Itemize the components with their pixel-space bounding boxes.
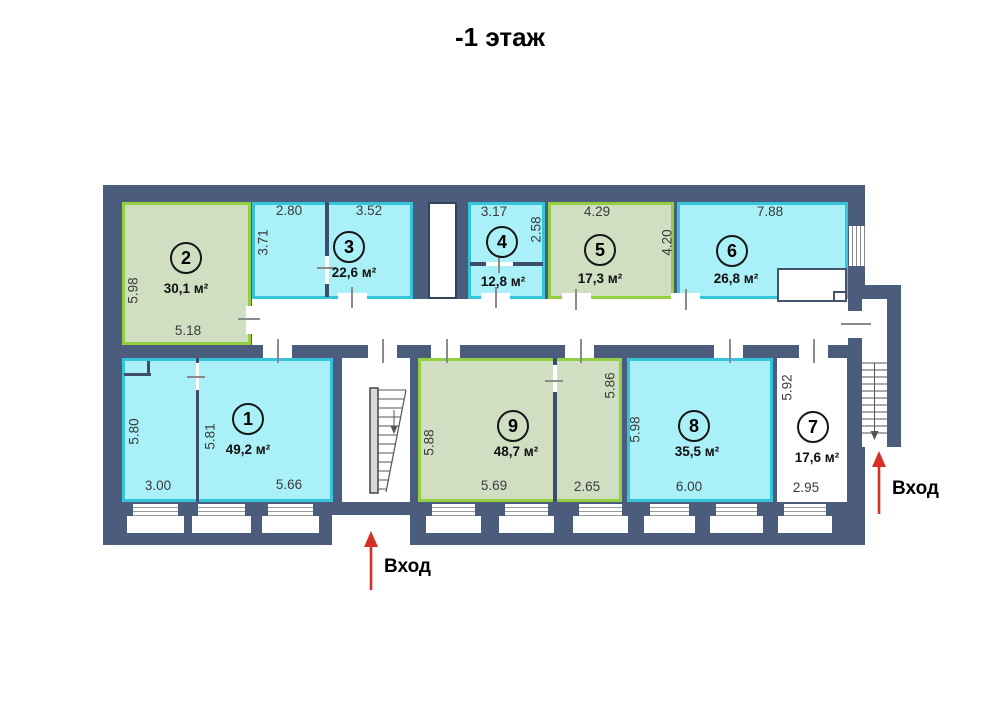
door-tick xyxy=(495,287,497,308)
dimension-label: 7.88 xyxy=(748,204,792,219)
wall-notch xyxy=(147,361,150,376)
room-6-area: 26,8 м² xyxy=(686,271,786,287)
window xyxy=(784,504,826,516)
window-well xyxy=(262,516,319,533)
door-tick xyxy=(238,318,260,320)
window-well xyxy=(778,516,832,533)
corridor xyxy=(252,299,848,345)
dimension-label: 5.98 xyxy=(628,408,643,452)
room-2-area: 30,1 м² xyxy=(136,281,236,297)
stairs-icon xyxy=(862,299,887,447)
room-8-number: 8 xyxy=(678,410,710,442)
door-tick xyxy=(351,287,353,308)
dimension-label: 3.17 xyxy=(472,204,516,219)
dimension-label: 2.80 xyxy=(267,203,311,218)
room-7-number: 7 xyxy=(797,411,829,443)
door-tick xyxy=(446,339,448,363)
door-tick xyxy=(685,289,687,310)
door-tick xyxy=(580,339,582,363)
window-well xyxy=(192,516,251,533)
window-well xyxy=(426,516,481,533)
niche-step xyxy=(833,291,835,302)
room-5-area: 17,3 м² xyxy=(550,271,650,287)
room-7-area: 17,6 м² xyxy=(767,450,867,466)
room-4-area: 12,8 м² xyxy=(453,274,553,290)
room-1-number: 1 xyxy=(232,403,264,435)
dimension-label: 4.29 xyxy=(575,204,619,219)
door-opening xyxy=(553,365,557,392)
dimension-label: 5.80 xyxy=(127,410,142,454)
room-3-area: 22,6 м² xyxy=(304,265,404,281)
entrance-label-bottom: Вход xyxy=(384,556,431,578)
room-3-number: 3 xyxy=(333,231,365,263)
dimension-label: 2.58 xyxy=(529,208,544,252)
stairs-icon xyxy=(342,358,410,502)
dimension-label: 5.69 xyxy=(472,478,516,493)
room-8-area: 35,5 м² xyxy=(647,444,747,460)
dimension-label: 2.95 xyxy=(784,480,828,495)
door-tick xyxy=(545,380,563,382)
page-title: -1 этаж xyxy=(0,22,1000,53)
dimension-label: 5.86 xyxy=(603,364,618,408)
window xyxy=(650,504,689,516)
room-1-area: 49,2 м² xyxy=(198,442,298,458)
window xyxy=(505,504,548,516)
window-well xyxy=(644,516,695,533)
dimension-label: 3.71 xyxy=(256,221,271,265)
window xyxy=(432,504,475,516)
window xyxy=(133,504,178,516)
door-tick xyxy=(729,339,731,363)
window xyxy=(716,504,757,516)
dimension-label: 5.88 xyxy=(422,421,437,465)
window xyxy=(849,226,865,266)
window xyxy=(268,504,313,516)
window xyxy=(198,504,245,516)
window xyxy=(579,504,622,516)
window-well xyxy=(710,516,763,533)
door-tick xyxy=(575,289,577,310)
floor-plan: -1 этаж xyxy=(0,0,1000,713)
dimension-label: 6.00 xyxy=(667,479,711,494)
dimension-label: 5.92 xyxy=(780,366,795,410)
dimension-label: 5.66 xyxy=(267,477,311,492)
room-6-number: 6 xyxy=(716,235,748,267)
window-well xyxy=(499,516,554,533)
room-6-niche xyxy=(777,268,847,302)
dimension-label: 5.18 xyxy=(166,323,210,338)
door-opening xyxy=(246,306,253,334)
dimension-label: 3.52 xyxy=(347,203,391,218)
door-tick xyxy=(813,339,815,363)
door-tick xyxy=(187,376,205,378)
room-5-number: 5 xyxy=(584,234,616,266)
window-well xyxy=(573,516,628,533)
window-well xyxy=(127,516,184,533)
dimension-label: 4.20 xyxy=(660,221,675,265)
room-2-number: 2 xyxy=(170,242,202,274)
dimension-label: 2.65 xyxy=(565,479,609,494)
door-tick xyxy=(277,339,279,363)
room-9-number: 9 xyxy=(497,410,529,442)
room-9-area: 48,7 м² xyxy=(466,444,566,460)
niche-step xyxy=(833,291,847,293)
entrance-label-right: Вход xyxy=(892,478,939,500)
room-4-number: 4 xyxy=(486,226,518,258)
dimension-label: 3.00 xyxy=(136,478,180,493)
